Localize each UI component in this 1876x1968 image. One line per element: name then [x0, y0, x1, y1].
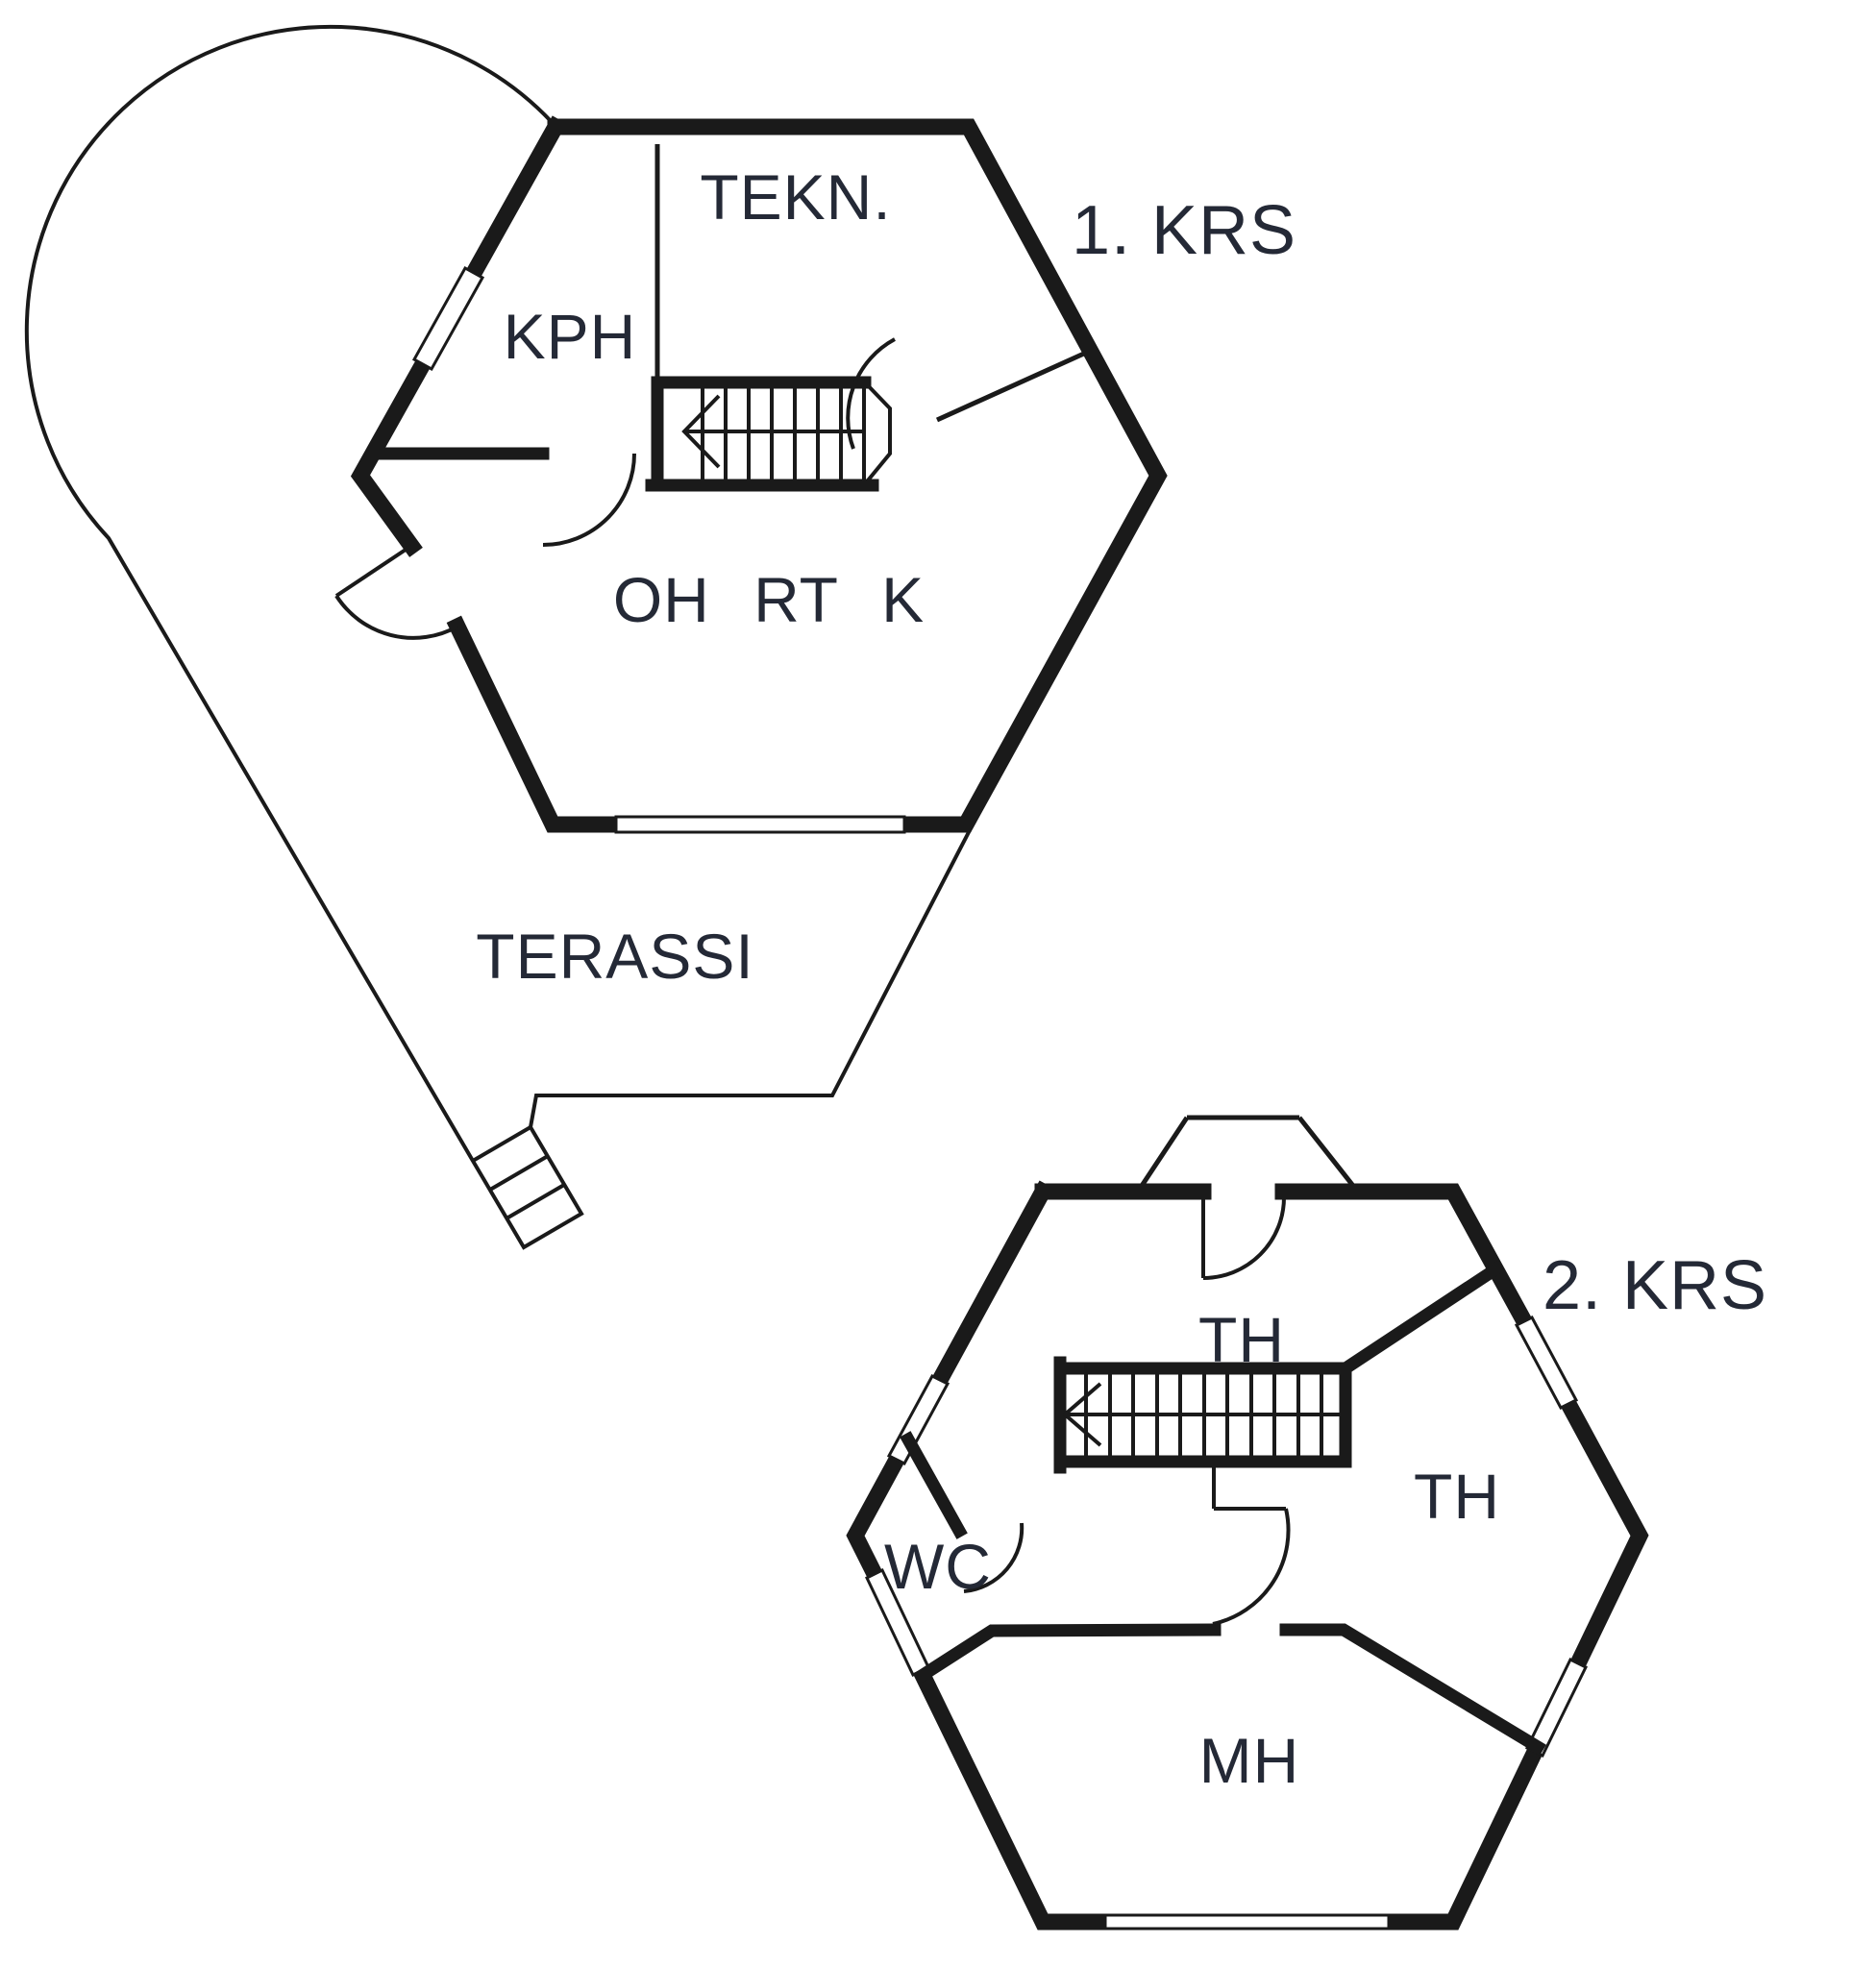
floor2-staircase: [1065, 1368, 1345, 1509]
floor1-staircase: [684, 382, 890, 480]
room-label-living: OH RT K: [613, 564, 925, 635]
kph-door-swing-arc: [543, 454, 634, 545]
floor2-window-upper-right: [1517, 1317, 1576, 1408]
floor2-entry-door: [1203, 1197, 1284, 1278]
floor2-entry-funnel: [1140, 1118, 1353, 1189]
floor1-interior-walls: [377, 382, 873, 485]
floor2-title: 2. KRS: [1543, 1247, 1767, 1324]
floor1-window-upper-left: [414, 268, 482, 369]
room-label-th-upper: TH: [1198, 1304, 1285, 1375]
floor2-stair-landing-rail: [1214, 1462, 1286, 1509]
floor1-window-bottom: [616, 817, 904, 832]
terrace-door-leaf: [336, 546, 411, 596]
floor-plan-drawing: TEKN. KPH OH RT K TERASSI 1. KRS: [0, 0, 1876, 1968]
floor1-plan: TEKN. KPH OH RT K TERASSI 1. KRS: [27, 27, 1296, 1247]
floor1-stair-chamfer: [865, 382, 890, 480]
terrace-steps: [473, 1127, 564, 1218]
floor2-plan: TH TH WC MH 2. KRS: [855, 1118, 1767, 1929]
floor1-terrace-door: [336, 546, 457, 638]
floor-plan-page: TEKN. KPH OH RT K TERASSI 1. KRS: [0, 0, 1876, 1968]
room-label-kph: KPH: [504, 301, 637, 372]
terrace-label: TERASSI: [476, 921, 753, 992]
terrace-door-swing-arc: [336, 596, 457, 638]
room-label-mh: MH: [1199, 1725, 1300, 1796]
mh-door-swing-arc: [1213, 1509, 1289, 1624]
entry-door-swing-arc: [1203, 1197, 1284, 1278]
floor2-window-bottom: [1105, 1915, 1389, 1929]
floor1-title: 1. KRS: [1072, 192, 1296, 269]
room-label-wc: WC: [884, 1531, 992, 1602]
room-label-th-right: TH: [1414, 1461, 1500, 1532]
room-label-tekn: TEKN.: [700, 161, 891, 233]
